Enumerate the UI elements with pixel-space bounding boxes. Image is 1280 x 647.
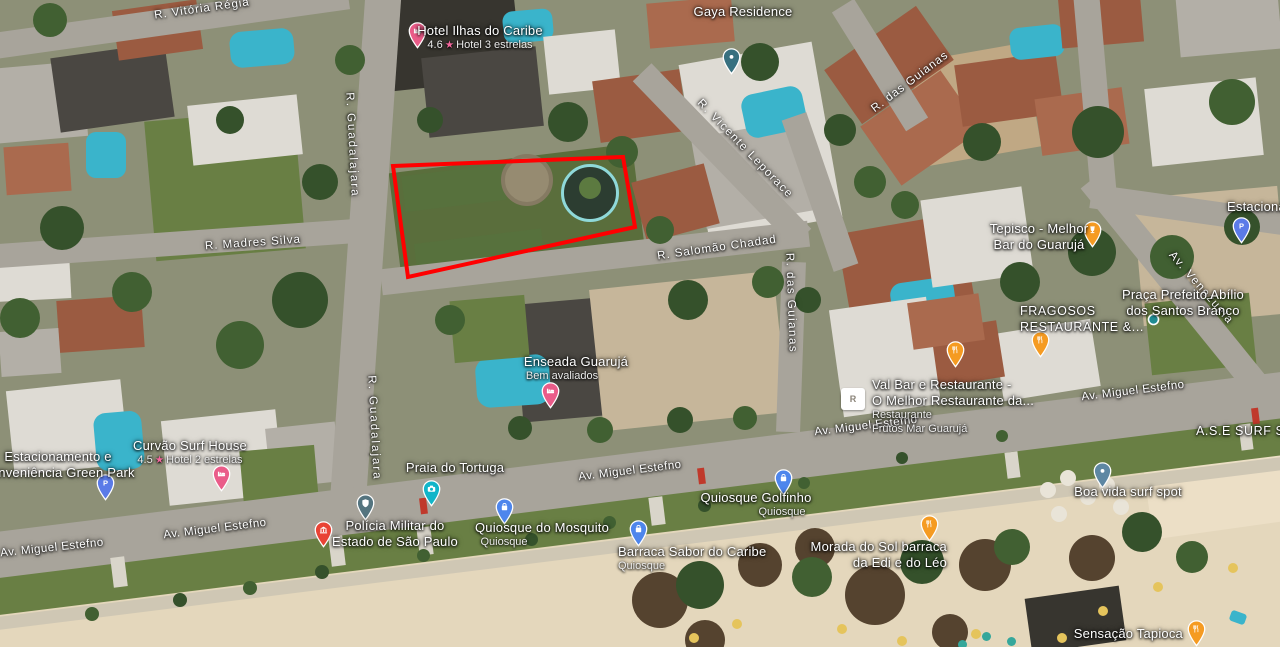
satellite-map-canvas[interactable]: PRP R. Vitória RégiaR. GuadalajaraR. Gua… [0, 0, 1280, 647]
street-label-av-miguel-estefno: Av. Miguel Estefno [578, 459, 683, 484]
poi-name: Curvão Surf House [133, 439, 247, 452]
street-label-r-vitoria-regia: R. Vitória Régia [153, 0, 250, 22]
poi-name: FRAGOSOS [1020, 305, 1144, 318]
poi-subtitle: Quiosque [726, 507, 837, 518]
street-label-r-das-guianas: R. das Guianas [869, 49, 951, 115]
tepisco-melhor-bar-do-guaruja-label[interactable]: Tepisco - MelhorBar do Guarujá [990, 222, 1089, 254]
quiosque-do-mosquito-label[interactable]: Quiosque do MosquitoQuiosque [475, 521, 609, 551]
poi-name: A.S.E SURF SCHOOL [1196, 425, 1280, 438]
poi-name: Enseada Guarujá [524, 355, 628, 368]
poi-name: Estacionamento e [0, 450, 135, 463]
poi-subtitle: Frutos Mar Guarujá [872, 424, 1034, 435]
gaya-residence-label[interactable]: Gaya Residence [694, 5, 793, 21]
street-label-r-guadalajara: R. Guadalajara [365, 375, 382, 481]
poi-name: O Melhor Restaurante da... [872, 394, 1034, 407]
poi-name: Gaya Residence [694, 5, 793, 18]
praia-do-tortuga-label[interactable]: Praia do Tortuga [406, 461, 504, 477]
poi-name: Barraca Sabor do Caribe [618, 545, 766, 558]
morada-do-sol-barraca-da-edi-e-do-leo-label[interactable]: Morada do Sol barracada Edi e do Léo [811, 540, 947, 572]
street-label-r-madres-silva: R. Madres Silva [205, 234, 302, 253]
street-label-r-guadalajara: R. Guadalajara [343, 92, 360, 198]
poi-name: Quiosque do Mosquito [475, 521, 609, 534]
poi-name: Val Bar e Restaurante - [872, 378, 1034, 391]
poi-subtitle: Restaurante [872, 410, 1034, 421]
poi-name: Praia do Tortuga [406, 461, 504, 474]
barraca-sabor-do-caribe-label[interactable]: Barraca Sabor do CaribeQuiosque [618, 545, 766, 575]
poi-name: Hotel Ilhas do Caribe [417, 24, 543, 37]
poi-name: Sensação Tapioca [1074, 627, 1183, 640]
poi-name: Morada do Sol barraca [811, 540, 947, 553]
street-label-r-vicente-leporace: R. Vicente Leporace [695, 97, 796, 201]
poi-name: Tepisco - Melhor [990, 222, 1089, 235]
street-label-av-miguel-estefno: Av. Miguel Estefno [0, 537, 104, 560]
poi-name: da Edi e do Léo [811, 556, 947, 569]
fragosos-restaurante-label[interactable]: FRAGOSOSRESTAURANTE &... [1020, 305, 1144, 336]
star-icon: ★ [153, 454, 166, 466]
hotel-ilhas-do-caribe-label[interactable]: Hotel Ilhas do Caribe4.6★Hotel 3 estrela… [417, 24, 543, 54]
poi-name: RESTAURANTE &... [1020, 321, 1144, 334]
map-label-layer: R. Vitória RégiaR. GuadalajaraR. Guadala… [0, 0, 1280, 647]
ase-surf-school-label[interactable]: A.S.E SURF SCHOOL [1196, 425, 1280, 441]
poi-name: Polícia Militar do [332, 519, 458, 532]
street-label-av-miguel-estefno: Av. Miguel Estefno [163, 517, 268, 542]
poi-subtitle: Bem avaliados [510, 371, 614, 382]
poi-name: Estacionamento [1227, 200, 1280, 213]
poi-subtitle: Quiosque [437, 537, 571, 548]
poi-name: Conveniência Green Park [0, 466, 135, 479]
quiosque-golfinho-label[interactable]: Quiosque GolfinhoQuiosque [700, 491, 811, 521]
street-label-av-miguel-estefno: Av. Miguel Estefno [1081, 379, 1186, 404]
poi-name: Boa vida surf spot [1074, 485, 1182, 498]
poi-name: Bar do Guarujá [990, 238, 1089, 251]
enseada-guaruja-label[interactable]: Enseada GuarujáBem avaliados [524, 355, 628, 385]
star-icon: ★ [443, 39, 456, 51]
val-bar-e-restaurante-label[interactable]: Val Bar e Restaurante -O Melhor Restaura… [872, 378, 1034, 438]
poi-name: Praça Prefeito Abílio [1122, 288, 1244, 301]
boa-vida-surf-spot-label[interactable]: Boa vida surf spot [1074, 485, 1182, 501]
street-label-r-salomao-chadad: R. Salomão Chadad [656, 234, 777, 263]
street-label-r-das-guianas: R. das Guianas [783, 253, 798, 354]
estacionamento-label[interactable]: Estacionamento [1227, 200, 1280, 216]
poi-subtitle: Quiosque [618, 561, 766, 572]
poi-name: Quiosque Golfinho [700, 491, 811, 504]
sensacao-tapioca-label[interactable]: Sensação Tapioca [1074, 627, 1183, 643]
curvao-surf-house-label[interactable]: Curvão Surf House4.5★Hotel 2 estrelas [133, 439, 247, 469]
estacionamento-e-conveniencia-green-park-label[interactable]: Estacionamento eConveniência Green Park [0, 450, 135, 482]
poi-rating: 4.6★Hotel 3 estrelas [417, 40, 543, 51]
poi-rating: 4.5★Hotel 2 estrelas [133, 455, 247, 466]
